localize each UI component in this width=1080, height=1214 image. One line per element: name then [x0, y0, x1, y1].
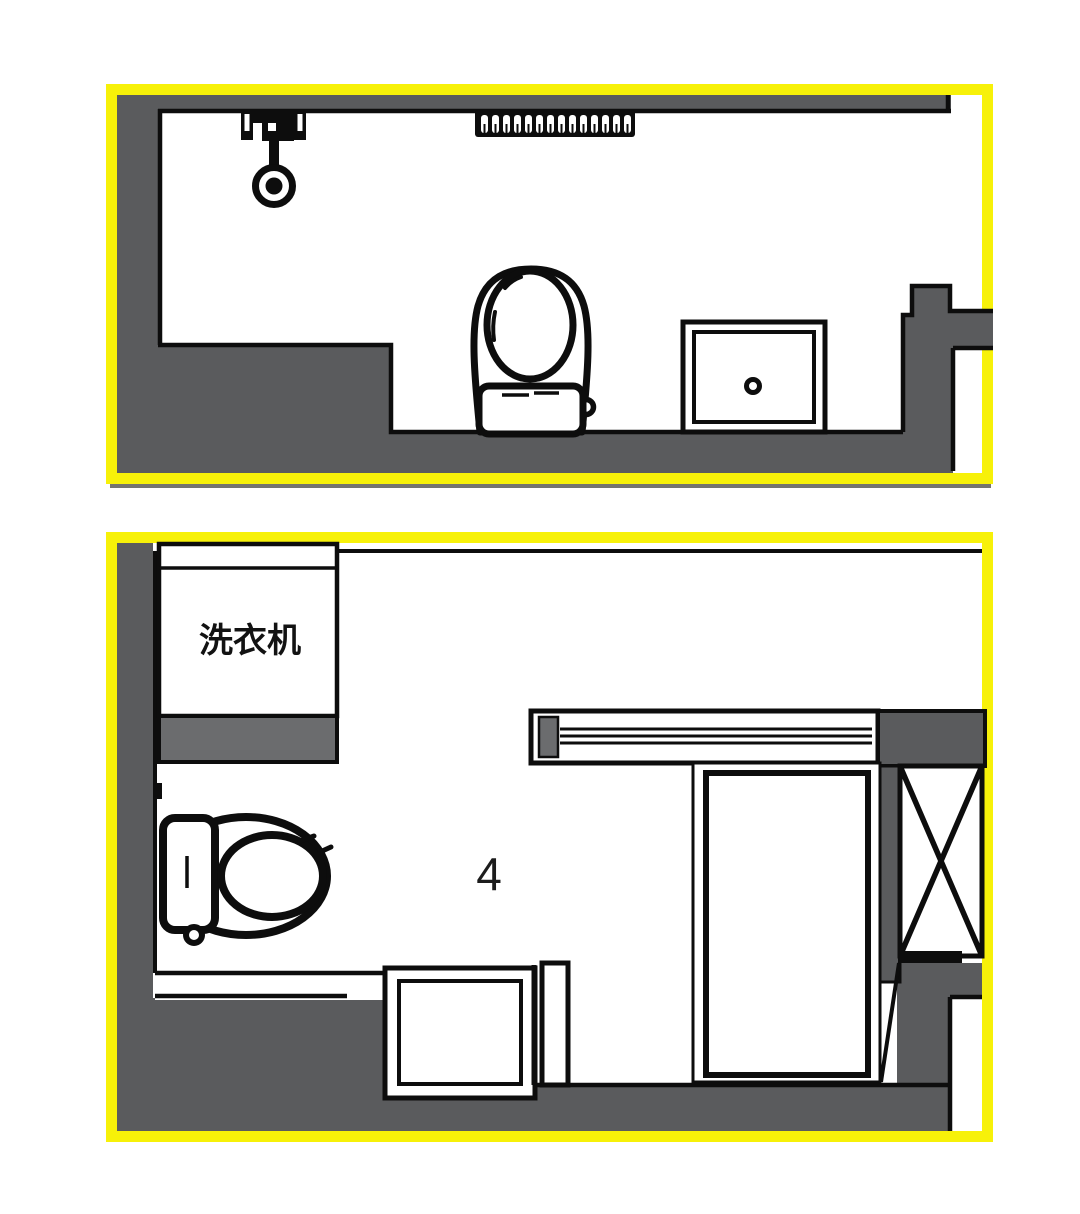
panel-top-shadow [110, 484, 991, 488]
shaft-bottom-bar [898, 951, 962, 963]
washing-machine-base [159, 716, 337, 762]
sink-icon [385, 968, 535, 1098]
sink-icon [683, 322, 825, 432]
wall-top [117, 95, 951, 111]
washing-machine-label: 洗衣机 [199, 622, 301, 660]
wall-right-upper [878, 711, 985, 766]
wall-bottom [117, 432, 903, 473]
shower-stall [693, 763, 880, 1082]
door-track-cap [539, 717, 558, 757]
sliding-door-track [531, 711, 878, 763]
floorplan-canvas: 洗衣机 4 [0, 0, 1080, 1214]
floorplan-collage: 洗衣机 4 [0, 0, 1080, 1214]
wall-notch [153, 783, 162, 799]
panel-bottom: 洗衣机 4 [106, 532, 993, 1142]
panel-top [106, 84, 993, 488]
counter-strip [155, 971, 397, 1000]
toilet-icon [474, 269, 594, 434]
zone-number-label: 4 [476, 848, 502, 900]
radiator-icon [475, 110, 635, 137]
shaft-side-wall [880, 766, 900, 982]
washing-machine: 洗衣机 [159, 544, 337, 762]
